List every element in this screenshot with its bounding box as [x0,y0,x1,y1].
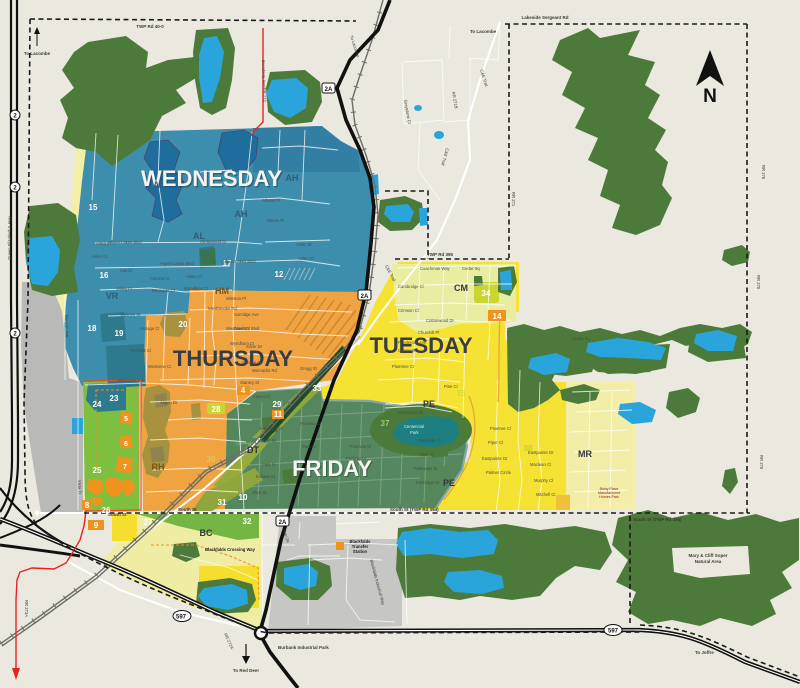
svg-text:18: 18 [88,324,97,333]
svg-text:Eastpointe Dr: Eastpointe Dr [482,456,508,461]
svg-text:2A: 2A [325,87,333,93]
svg-text:Panorama Dr: Panorama Dr [398,410,424,415]
svg-text:RH: RH [152,462,165,472]
svg-text:2A: 2A [279,520,287,526]
svg-text:RR 270: RR 270 [756,275,761,290]
svg-text:Westbrooke Rd: Westbrooke Rd [208,306,237,311]
svg-text:Womacks Rd: Womacks Rd [252,368,277,373]
svg-text:10: 10 [239,493,248,502]
svg-text:29: 29 [273,400,282,409]
svg-text:Ava Cr: Ava Cr [120,268,133,273]
svg-text:37: 37 [381,419,390,428]
svg-text:Duncan Ave: Duncan Ave [64,315,70,338]
svg-text:Aspen Dr: Aspen Dr [160,400,178,405]
svg-text:23: 23 [110,394,119,403]
svg-text:Winston Pl: Winston Pl [226,296,246,301]
svg-text:RR 270: RR 270 [761,165,766,180]
svg-text:Westgate Cr: Westgate Cr [152,288,176,293]
svg-text:Sunrise Cl: Sunrise Cl [242,360,261,365]
svg-text:TWP Rd 395: TWP Rd 395 [427,252,453,257]
svg-text:Plumtree Cr: Plumtree Cr [392,364,415,369]
svg-text:Indiana St: Indiana St [256,474,276,479]
svg-text:South St: South St [108,512,127,517]
svg-text:Mitchell Cr: Mitchell Cr [536,492,556,497]
svg-text:Piper Cl: Piper Cl [488,440,503,445]
svg-text:Aztec Cr: Aztec Cr [298,256,315,261]
svg-text:597: 597 [608,629,619,635]
svg-text:6: 6 [124,441,128,448]
svg-text:Centennial: Centennial [404,424,424,429]
svg-text:Vintage Cr: Vintage Cr [140,326,160,331]
svg-text:Aztec St: Aztec St [296,242,312,247]
svg-text:Burbank Industrial Park: Burbank Industrial Park [278,645,329,650]
svg-text:RR 273A: RR 273A [24,600,29,617]
svg-text:Palmer Circle: Palmer Circle [486,470,512,475]
svg-text:Aspen Lakes Blvd: Aspen Lakes Blvd [160,261,194,266]
svg-text:12: 12 [275,270,284,279]
svg-text:Cedar Sq: Cedar Sq [572,336,590,341]
svg-text:PE: PE [443,478,455,488]
svg-text:28: 28 [212,405,221,414]
svg-text:RR 271: RR 271 [511,192,516,207]
svg-text:Cambridge Cl: Cambridge Cl [398,284,424,289]
svg-text:Station: Station [353,549,368,554]
svg-text:To Joffre: To Joffre [695,650,714,655]
svg-text:Athens Pl: Athens Pl [262,198,280,203]
svg-text:South St (TWP Rd 394): South St (TWP Rd 394) [390,507,439,512]
svg-text:Wilson St: Wilson St [258,438,277,443]
svg-text:To Red Deer: To Red Deer [233,668,259,673]
svg-text:Aspen Cr: Aspen Cr [253,394,271,399]
svg-text:34: 34 [482,289,491,298]
svg-text:Park: Park [410,430,420,435]
svg-text:TUESDAY: TUESDAY [369,333,472,358]
svg-text:15: 15 [89,203,98,212]
svg-text:Pondside Cr: Pondside Cr [418,438,442,443]
svg-text:Sunridge Ave: Sunridge Ave [234,312,260,317]
svg-text:Queen Elizabeth II Hwy: Queen Elizabeth II Hwy [7,215,12,260]
svg-text:To Lacombe: To Lacombe [24,51,51,56]
svg-text:Westview Cr: Westview Cr [148,364,172,369]
svg-text:8: 8 [85,501,90,510]
svg-text:Arrowwood Cl: Arrowwood Cl [200,239,226,244]
svg-text:AL: AL [153,180,165,190]
svg-text:Pinnacle Cl: Pinnacle Cl [350,444,371,449]
svg-text:AH: AH [235,209,248,219]
svg-text:Pinetree Cl: Pinetree Cl [490,426,511,431]
svg-text:33: 33 [313,384,322,393]
svg-text:DT: DT [247,445,259,455]
svg-text:Waghorn St: Waghorn St [260,426,283,431]
svg-text:11: 11 [274,410,283,419]
svg-text:Pine Cl: Pine Cl [444,384,458,389]
svg-text:27: 27 [144,518,153,527]
svg-text:MR: MR [578,449,592,459]
svg-text:Cedar Sq: Cedar Sq [462,266,480,271]
svg-text:HM: HM [215,286,229,296]
svg-text:Adina Cl: Adina Cl [186,274,202,279]
svg-text:36: 36 [457,389,466,398]
svg-text:20: 20 [179,320,188,329]
svg-text:Natural Area: Natural Area [695,559,722,564]
svg-text:Eastpointe Dr: Eastpointe Dr [528,450,554,455]
svg-text:Vermont Cl: Vermont Cl [130,348,151,353]
svg-text:Arlen Cl: Arlen Cl [92,254,107,259]
svg-text:Blackfalds Crossing Way: Blackfalds Crossing Way [205,547,256,552]
svg-text:Parkridge Cr: Parkridge Cr [416,480,440,485]
svg-text:CM: CM [454,283,468,293]
svg-text:South St (TWP Rd 394): South St (TWP Rd 394) [633,517,682,522]
svg-text:South St: South St [178,507,197,512]
svg-text:Stanford Blvd: Stanford Blvd [234,326,260,331]
svg-text:Almond Cr: Almond Cr [150,276,170,281]
svg-text:RR 270: RR 270 [759,455,764,470]
svg-text:Park St: Park St [262,462,277,467]
svg-text:N: N [703,86,717,107]
svg-text:30: 30 [207,455,216,464]
svg-text:Coachman Way: Coachman Way [420,266,451,271]
svg-text:VR: VR [106,291,119,301]
svg-text:Vista Tr: Vista Tr [77,480,83,495]
svg-text:Valmont St: Valmont St [120,312,141,317]
svg-text:Gregg St: Gregg St [300,366,318,371]
svg-text:9: 9 [94,521,99,530]
svg-text:Athens Pl: Athens Pl [266,218,284,223]
svg-text:PE: PE [423,399,435,409]
svg-text:Aspen Lakes Blvd: Aspen Lakes Blvd [108,240,142,245]
svg-text:16: 16 [100,271,109,280]
svg-text:AH: AH [286,173,299,183]
svg-text:Lakeside Sergeant Rd: Lakeside Sergeant Rd [521,15,568,20]
svg-text:14: 14 [493,312,502,321]
svg-text:Woodbine Cl: Woodbine Cl [184,286,208,291]
svg-text:BC: BC [200,528,213,538]
svg-text:597: 597 [176,615,187,621]
svg-text:Cyprus Rd: Cyprus Rd [398,348,418,353]
svg-text:Cottonwood Dr: Cottonwood Dr [426,318,455,323]
svg-text:Crimson Cl: Crimson Cl [398,308,419,313]
svg-text:Ponderosa Ave: Ponderosa Ave [398,340,427,345]
svg-text:Shull St: Shull St [252,490,267,495]
svg-text:24: 24 [93,400,102,409]
svg-text:Silver Dr: Silver Dr [246,344,263,349]
svg-text:Mary & Cliff Soper: Mary & Cliff Soper [688,553,727,558]
svg-text:TWP Rd 40-0: TWP Rd 40-0 [136,24,164,29]
svg-text:Homes Park: Homes Park [599,495,619,499]
svg-text:Park St: Park St [302,444,317,449]
svg-text:Portway Cl: Portway Cl [346,456,366,461]
svg-text:To Lacombe: To Lacombe [470,29,497,34]
svg-text:32: 32 [243,517,252,526]
svg-text:19: 19 [115,329,124,338]
svg-text:31: 31 [218,498,227,507]
svg-text:Palisades St: Palisades St [414,466,438,471]
svg-text:Valley Cr: Valley Cr [116,286,133,291]
svg-text:Aspen Lakes Blvd: Aspen Lakes Blvd [222,259,256,264]
svg-text:Park St: Park St [420,452,435,457]
svg-text:Promina Cr: Promina Cr [300,421,322,426]
svg-text:Stanley St: Stanley St [240,380,260,385]
svg-text:7: 7 [123,464,127,471]
svg-text:Womacks Rd: Womacks Rd [118,378,143,383]
svg-text:Murphy Cl: Murphy Cl [534,478,553,483]
svg-text:2A: 2A [361,294,369,300]
svg-text:Maclean Cl: Maclean Cl [530,462,551,467]
svg-text:5: 5 [124,416,128,423]
svg-text:Churchill Pl: Churchill Pl [418,330,439,335]
svg-text:4: 4 [241,386,246,395]
svg-text:25: 25 [93,466,102,475]
